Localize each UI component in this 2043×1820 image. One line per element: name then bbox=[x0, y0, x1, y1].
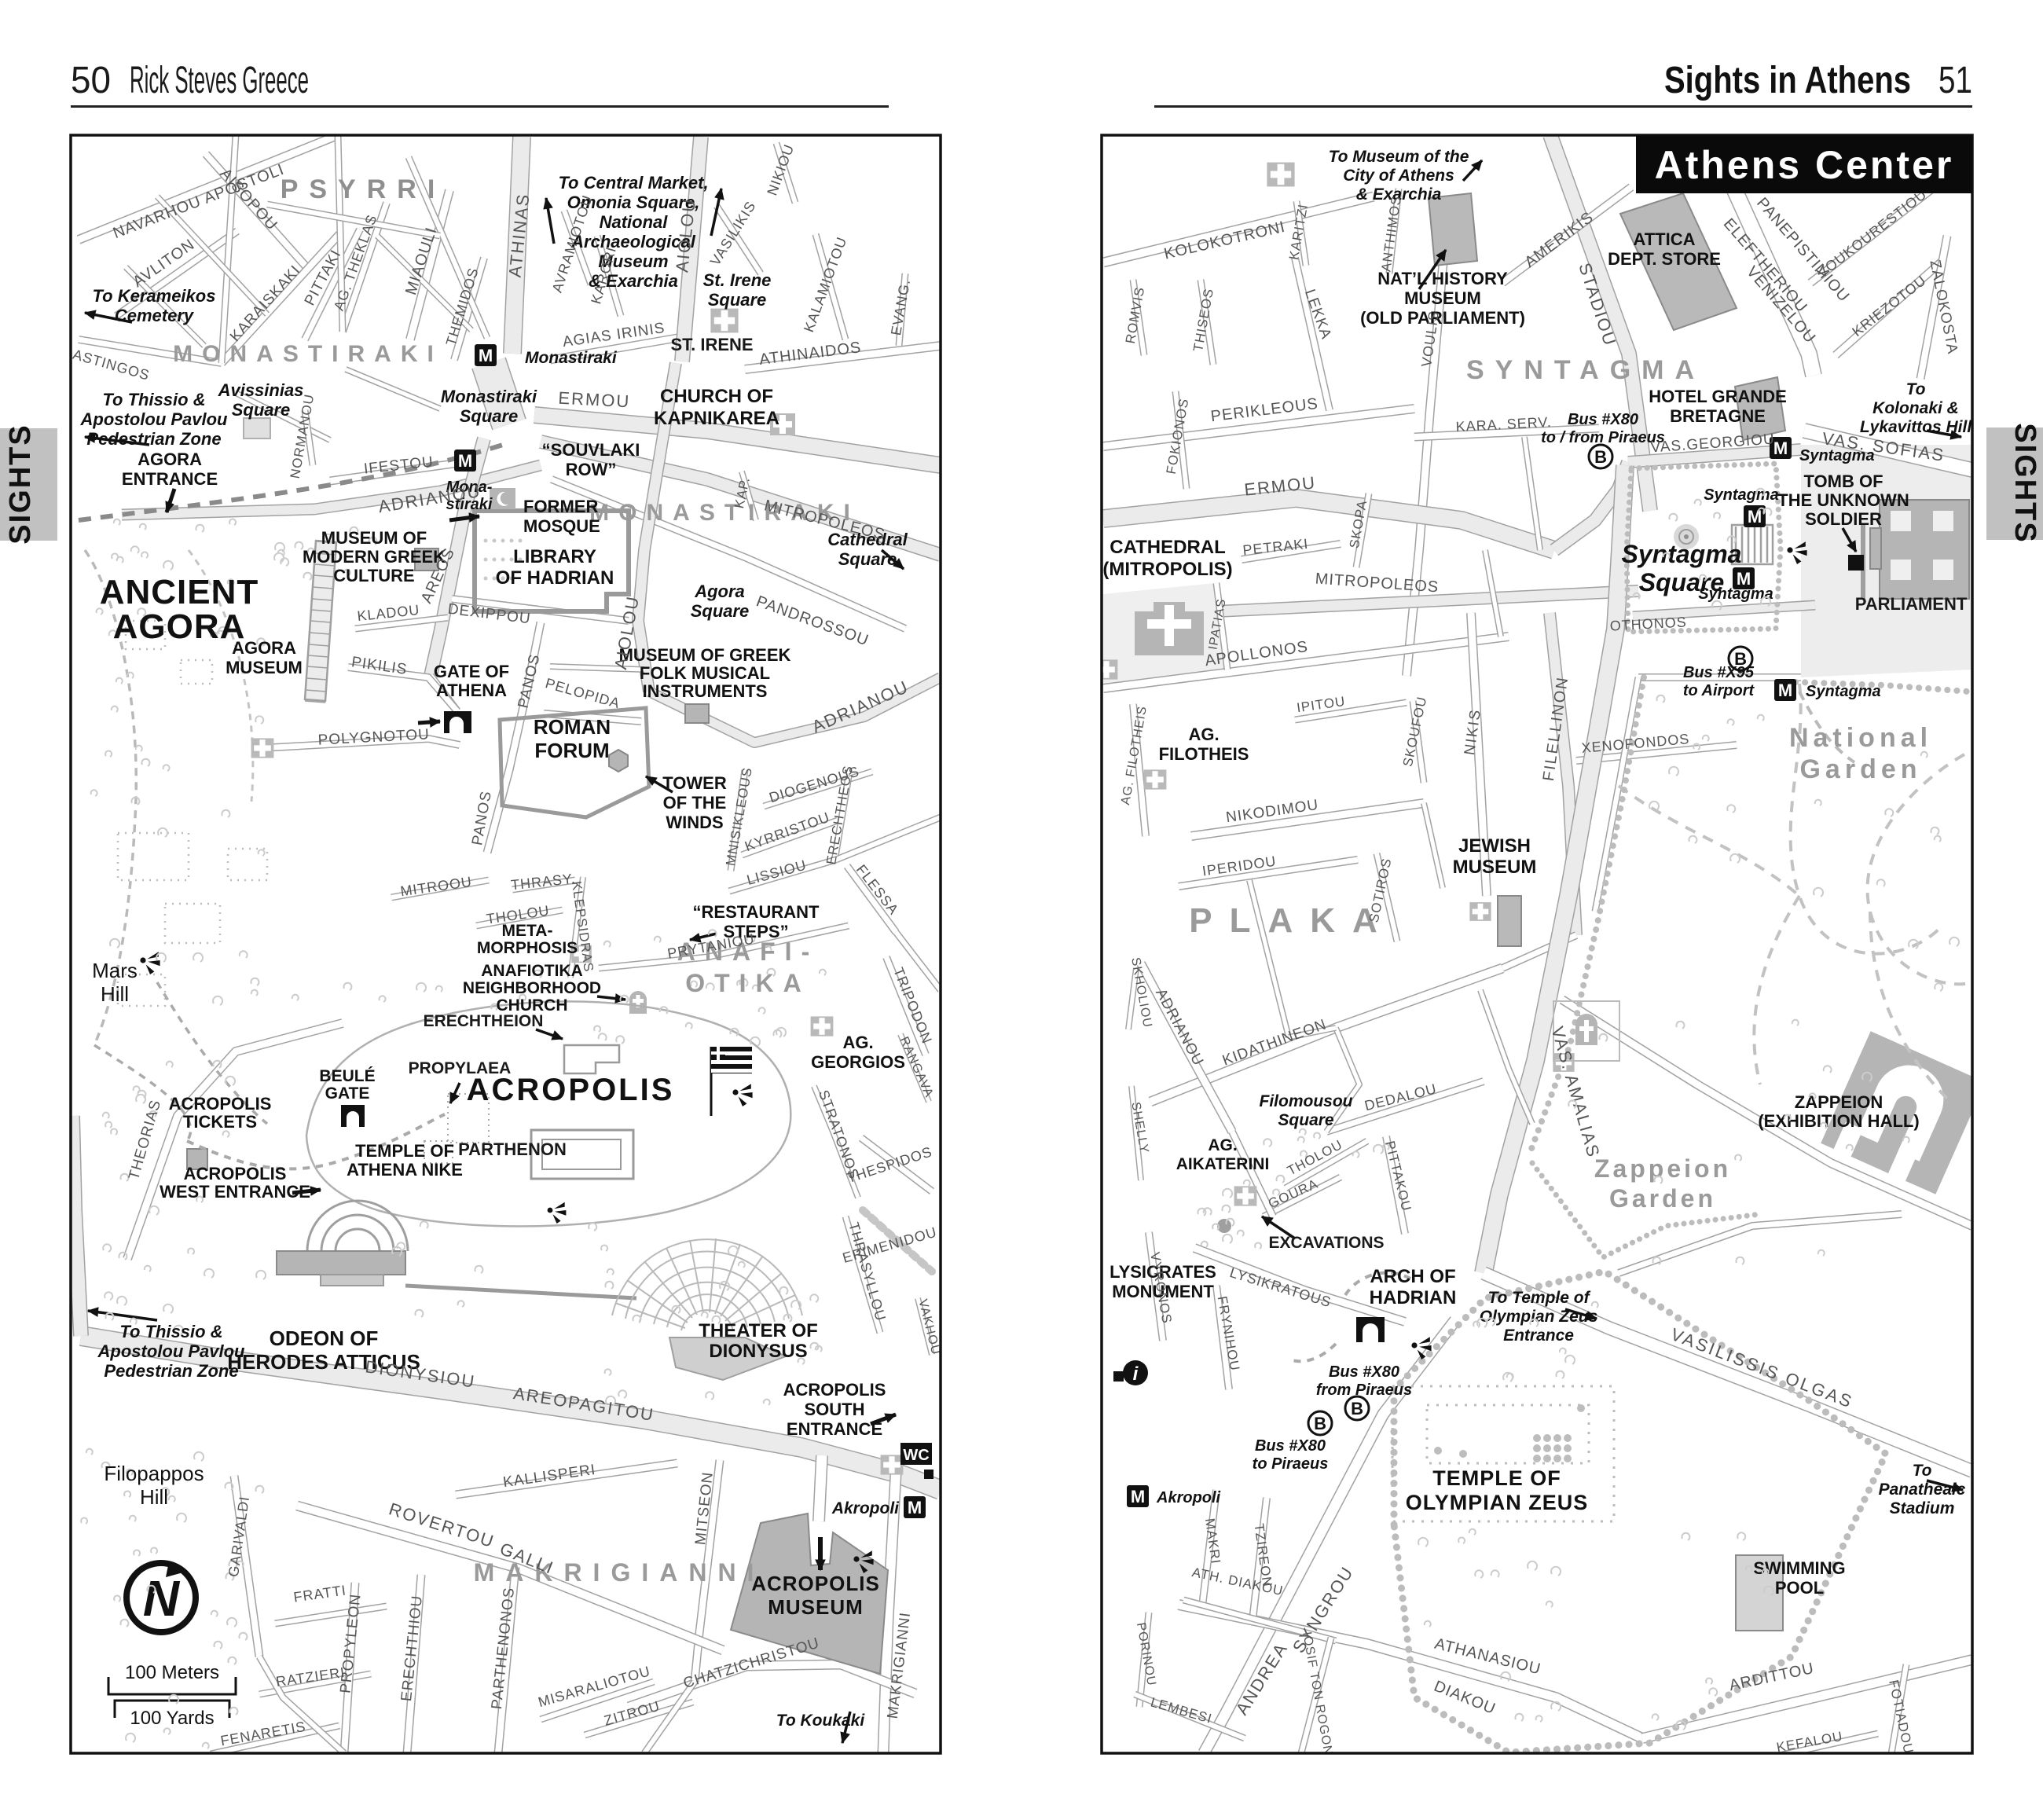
svg-text:Lykavittos Hill: Lykavittos Hill bbox=[1860, 418, 1973, 436]
svg-text:ATHENA NIKE: ATHENA NIKE bbox=[347, 1160, 463, 1180]
svg-text:ACROPOLIS: ACROPOLIS bbox=[467, 1073, 675, 1107]
svg-text:ARCH OF: ARCH OF bbox=[1370, 1266, 1455, 1287]
svg-text:To Thissio &: To Thissio & bbox=[102, 390, 205, 409]
svg-text:SOLDIER: SOLDIER bbox=[1805, 509, 1882, 529]
svg-text:TICKETS: TICKETS bbox=[183, 1112, 257, 1132]
svg-text:POOL: POOL bbox=[1775, 1578, 1824, 1598]
svg-text:BEULÉ: BEULÉ bbox=[319, 1067, 375, 1085]
svg-text:To: To bbox=[1913, 1462, 1932, 1480]
svg-text:SWIMMING: SWIMMING bbox=[1753, 1558, 1845, 1578]
svg-text:MUSEUM OF: MUSEUM OF bbox=[321, 528, 427, 548]
svg-text:Hill: Hill bbox=[101, 982, 129, 1006]
svg-text:WC: WC bbox=[903, 1447, 929, 1464]
svg-text:To: To bbox=[1906, 380, 1926, 398]
svg-text:AG.: AG. bbox=[1208, 1136, 1237, 1154]
svg-text:Apostolou Pavlou: Apostolou Pavlou bbox=[97, 1341, 246, 1361]
svg-text:(MITROPOLIS): (MITROPOLIS) bbox=[1102, 559, 1232, 580]
svg-text:M: M bbox=[1778, 681, 1792, 700]
svg-text:Filomousou: Filomousou bbox=[1260, 1092, 1353, 1110]
svg-text:DEPT. STORE: DEPT. STORE bbox=[1608, 249, 1721, 269]
svg-text:to / from Piraeus: to / from Piraeus bbox=[1541, 429, 1665, 446]
svg-text:CATHEDRAL: CATHEDRAL bbox=[1110, 537, 1226, 558]
svg-text:FORMER: FORMER bbox=[523, 497, 598, 516]
svg-text:FOLK MUSICAL: FOLK MUSICAL bbox=[640, 663, 770, 683]
svg-text:Syntagma: Syntagma bbox=[1704, 486, 1779, 504]
svg-text:OTIKA: OTIKA bbox=[685, 969, 811, 997]
svg-text:To Koukaki: To Koukaki bbox=[776, 1712, 866, 1730]
svg-text:Avissinias: Avissinias bbox=[218, 380, 304, 400]
svg-text:TEMPLE OF: TEMPLE OF bbox=[355, 1141, 454, 1161]
svg-text:GATE: GATE bbox=[325, 1084, 370, 1103]
svg-text:SIGHTS: SIGHTS bbox=[2008, 423, 2041, 543]
svg-text:TEMPLE OF: TEMPLE OF bbox=[1432, 1466, 1561, 1490]
svg-text:MUSEUM: MUSEUM bbox=[1404, 288, 1481, 308]
svg-text:PSYRRI: PSYRRI bbox=[281, 174, 446, 204]
svg-text:TOWER: TOWER bbox=[662, 773, 727, 793]
svg-text:ERECHTHEION: ERECHTHEION bbox=[424, 1012, 544, 1030]
svg-text:Hill: Hill bbox=[140, 1485, 168, 1509]
svg-text:N: N bbox=[143, 1570, 181, 1627]
svg-text:PARLIAMENT: PARLIAMENT bbox=[1855, 594, 1968, 614]
svg-text:ACROPOLIS: ACROPOLIS bbox=[783, 1380, 886, 1400]
svg-text:B: B bbox=[1314, 1414, 1326, 1433]
svg-text:Bus #X80: Bus #X80 bbox=[1568, 411, 1638, 428]
svg-text:GEORGIOS: GEORGIOS bbox=[811, 1052, 905, 1072]
svg-text:Cemetery: Cemetery bbox=[115, 306, 195, 325]
svg-text:KAPNIKAREA: KAPNIKAREA bbox=[654, 408, 779, 429]
svg-text:National: National bbox=[600, 212, 669, 232]
svg-text:ATTICA: ATTICA bbox=[1633, 229, 1695, 249]
svg-text:LIBRARY: LIBRARY bbox=[513, 546, 596, 567]
svg-text:PLAKA: PLAKA bbox=[1189, 901, 1395, 940]
svg-text:To Museum of the: To Museum of the bbox=[1329, 148, 1469, 166]
svg-text:OF THE: OF THE bbox=[663, 793, 727, 813]
svg-text:ATHENA: ATHENA bbox=[436, 681, 507, 700]
svg-text:ACROPOLIS: ACROPOLIS bbox=[751, 1572, 880, 1595]
svg-text:(OLD PARLIAMENT): (OLD PARLIAMENT) bbox=[1360, 308, 1525, 328]
svg-text:OF HADRIAN: OF HADRIAN bbox=[496, 567, 614, 589]
svg-text:ENTRANCE: ENTRANCE bbox=[122, 469, 218, 489]
svg-text:M: M bbox=[458, 451, 472, 471]
svg-text:THE UNKNOWN: THE UNKNOWN bbox=[1777, 490, 1909, 510]
svg-text:(EXHIBITION HALL): (EXHIBITION HALL) bbox=[1758, 1111, 1919, 1131]
svg-text:OLYMPIAN ZEUS: OLYMPIAN ZEUS bbox=[1406, 1491, 1589, 1514]
svg-text:CULTURE: CULTURE bbox=[333, 566, 414, 585]
svg-text:Bus #X80: Bus #X80 bbox=[1329, 1363, 1399, 1381]
svg-text:M: M bbox=[908, 1498, 922, 1517]
svg-text:Square: Square bbox=[708, 290, 767, 310]
svg-text:M: M bbox=[1131, 1487, 1145, 1506]
svg-text:to Airport: to Airport bbox=[1683, 682, 1755, 699]
svg-text:SIGHTS: SIGHTS bbox=[4, 424, 37, 544]
svg-text:To Kerameikos: To Kerameikos bbox=[93, 286, 216, 306]
svg-text:51: 51 bbox=[1938, 60, 1972, 101]
svg-text:ZAPPEION: ZAPPEION bbox=[1795, 1092, 1883, 1112]
svg-text:Garden: Garden bbox=[1799, 754, 1921, 784]
svg-text:PARTHENON: PARTHENON bbox=[458, 1139, 567, 1159]
svg-text:MODERN GREEK: MODERN GREEK bbox=[303, 547, 446, 567]
svg-text:Akropoli: Akropoli bbox=[831, 1499, 900, 1517]
svg-text:To Thissio &: To Thissio & bbox=[119, 1322, 222, 1341]
svg-text:100 Meters: 100 Meters bbox=[125, 1662, 219, 1683]
svg-text:FILOTHEIS: FILOTHEIS bbox=[1159, 744, 1249, 764]
svg-text:to Piraeus: to Piraeus bbox=[1253, 1455, 1329, 1473]
svg-text:Garden: Garden bbox=[1609, 1184, 1716, 1213]
svg-text:Square: Square bbox=[691, 601, 750, 621]
svg-text:SOUTH: SOUTH bbox=[805, 1400, 865, 1419]
svg-text:ACROPOLIS: ACROPOLIS bbox=[169, 1094, 272, 1114]
svg-text:“SOUVLAKI: “SOUVLAKI bbox=[542, 440, 640, 460]
svg-text:To Temple of: To Temple of bbox=[1487, 1289, 1590, 1307]
svg-text:WEST ENTRANCE: WEST ENTRANCE bbox=[160, 1182, 310, 1202]
svg-text:HADRIAN: HADRIAN bbox=[1370, 1287, 1457, 1308]
svg-text:Akropoli: Akropoli bbox=[1156, 1489, 1221, 1506]
svg-text:Athens Center: Athens Center bbox=[1655, 143, 1954, 187]
svg-text:THEATER OF: THEATER OF bbox=[699, 1320, 818, 1341]
svg-text:NAT’L HISTORY: NAT’L HISTORY bbox=[1377, 269, 1508, 288]
svg-text:St. Irene: St. Irene bbox=[703, 270, 772, 290]
svg-text:AGORA: AGORA bbox=[138, 449, 202, 469]
svg-text:Square: Square bbox=[232, 400, 291, 420]
svg-text:ENTRANCE: ENTRANCE bbox=[787, 1419, 882, 1439]
svg-text:Monastiraki: Monastiraki bbox=[441, 387, 537, 406]
svg-text:META-: META- bbox=[502, 922, 553, 940]
svg-text:M: M bbox=[1748, 507, 1762, 527]
svg-text:MUSEUM OF GREEK: MUSEUM OF GREEK bbox=[619, 645, 791, 665]
svg-text:Syntagma: Syntagma bbox=[1622, 540, 1742, 568]
svg-text:M: M bbox=[1773, 438, 1788, 458]
svg-text:ERMOU: ERMOU bbox=[558, 388, 631, 412]
svg-text:DIONYSUS: DIONYSUS bbox=[709, 1341, 807, 1362]
svg-text:M: M bbox=[479, 346, 493, 365]
svg-text:ACROPOLIS: ACROPOLIS bbox=[184, 1164, 287, 1183]
svg-text:JEWISH: JEWISH bbox=[1458, 835, 1531, 857]
svg-text:FORUM: FORUM bbox=[534, 739, 609, 762]
svg-text:Sights in Athens: Sights in Athens bbox=[1664, 60, 1911, 101]
svg-text:ROMAN: ROMAN bbox=[534, 715, 611, 739]
svg-text:from Piraeus: from Piraeus bbox=[1316, 1382, 1412, 1399]
svg-text:SYNTAGMA: SYNTAGMA bbox=[1466, 355, 1705, 385]
svg-text:To Central Market,: To Central Market, bbox=[558, 173, 708, 193]
svg-text:AGORA: AGORA bbox=[232, 638, 296, 658]
svg-text:Panatheaic: Panatheaic bbox=[1879, 1481, 1966, 1499]
svg-text:Bus #X80: Bus #X80 bbox=[1255, 1437, 1326, 1455]
svg-text:Square: Square bbox=[838, 549, 897, 569]
svg-text:ODEON OF: ODEON OF bbox=[270, 1326, 379, 1350]
svg-text:50: 50 bbox=[71, 60, 111, 101]
svg-text:Monastiraki: Monastiraki bbox=[525, 349, 618, 367]
svg-text:B: B bbox=[1594, 447, 1607, 467]
svg-text:MUSEUM: MUSEUM bbox=[1453, 857, 1537, 878]
svg-text:Pedestrian Zone: Pedestrian Zone bbox=[104, 1361, 238, 1381]
svg-text:City of Athens: City of Athens bbox=[1343, 167, 1454, 185]
svg-text:AG.: AG. bbox=[1188, 725, 1219, 744]
svg-text:PROPYLAEA: PROPYLAEA bbox=[409, 1059, 512, 1077]
svg-text:100 Yards: 100 Yards bbox=[130, 1708, 214, 1729]
svg-text:CHURCH OF: CHURCH OF bbox=[660, 386, 773, 407]
svg-text:Bus #X95: Bus #X95 bbox=[1683, 664, 1755, 681]
svg-text:ST. IRENE: ST. IRENE bbox=[670, 335, 753, 354]
svg-text:ROW”: ROW” bbox=[566, 460, 617, 479]
svg-text:Agora: Agora bbox=[694, 582, 745, 601]
svg-text:Filopappos: Filopappos bbox=[104, 1462, 204, 1485]
svg-text:BRETAGNE: BRETAGNE bbox=[1670, 406, 1766, 426]
svg-text:ANCIENT: ANCIENT bbox=[100, 573, 259, 611]
svg-text:Apostolou Pavlou: Apostolou Pavlou bbox=[80, 409, 229, 429]
svg-text:EXCAVATIONS: EXCAVATIONS bbox=[1268, 1234, 1384, 1252]
svg-text:Square: Square bbox=[1639, 568, 1724, 596]
svg-text:MUSEUM: MUSEUM bbox=[226, 658, 303, 677]
svg-text:Stadium: Stadium bbox=[1890, 1499, 1955, 1517]
svg-text:Square: Square bbox=[1278, 1111, 1334, 1129]
svg-text:WINDS: WINDS bbox=[666, 813, 723, 832]
svg-text:Pedestrian Zone: Pedestrian Zone bbox=[86, 429, 221, 449]
svg-text:“RESTAURANT: “RESTAURANT bbox=[693, 902, 820, 922]
svg-text:AIKATERINI: AIKATERINI bbox=[1176, 1155, 1270, 1173]
svg-text:GATE OF: GATE OF bbox=[434, 662, 509, 681]
svg-text:Square: Square bbox=[460, 406, 519, 426]
svg-text:National: National bbox=[1789, 723, 1932, 753]
svg-text:Entrance: Entrance bbox=[1503, 1326, 1574, 1345]
svg-text:AG.: AG. bbox=[842, 1033, 873, 1052]
svg-text:Rick Steves Greece: Rick Steves Greece bbox=[130, 60, 309, 101]
svg-text:Mars: Mars bbox=[92, 959, 138, 982]
svg-text:MUSEUM: MUSEUM bbox=[768, 1595, 864, 1619]
svg-text:MONASTIRAKI: MONASTIRAKI bbox=[173, 341, 443, 367]
svg-text:MORPHOSIS: MORPHOSIS bbox=[477, 939, 578, 957]
svg-text:ANAFIOTIKA: ANAFIOTIKA bbox=[481, 962, 583, 980]
svg-text:AGORA: AGORA bbox=[113, 607, 246, 646]
svg-text:Kolonaki &: Kolonaki & bbox=[1872, 399, 1959, 417]
svg-text:MOSQUE: MOSQUE bbox=[523, 516, 600, 536]
svg-text:INSTRUMENTS: INSTRUMENTS bbox=[643, 681, 768, 701]
svg-text:TOMB OF: TOMB OF bbox=[1803, 472, 1883, 491]
svg-text:B: B bbox=[1351, 1399, 1363, 1418]
svg-text:Syntagma: Syntagma bbox=[1806, 683, 1881, 700]
svg-text:HOTEL GRANDE: HOTEL GRANDE bbox=[1649, 387, 1787, 406]
svg-text:NEIGHBORHOOD: NEIGHBORHOOD bbox=[463, 979, 601, 997]
